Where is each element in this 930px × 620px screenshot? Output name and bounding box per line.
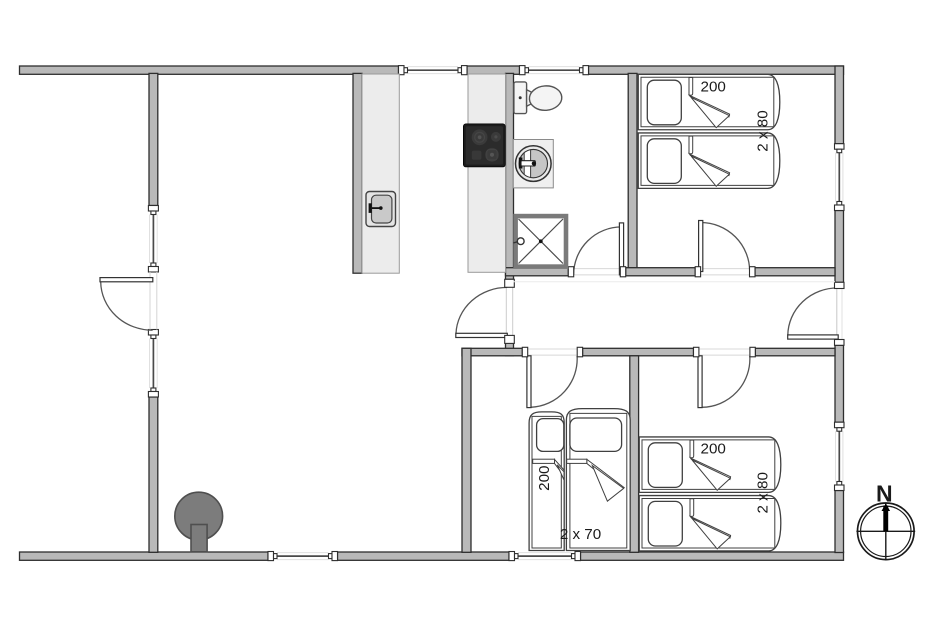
svg-text:2 x 70: 2 x 70 (560, 526, 601, 543)
svg-text:2 x 80: 2 x 80 (755, 110, 772, 151)
svg-text:N: N (876, 480, 893, 506)
svg-text:200: 200 (701, 78, 726, 95)
svg-text:2 x 80: 2 x 80 (755, 472, 772, 513)
svg-text:200: 200 (536, 466, 553, 491)
svg-text:200: 200 (701, 441, 726, 458)
